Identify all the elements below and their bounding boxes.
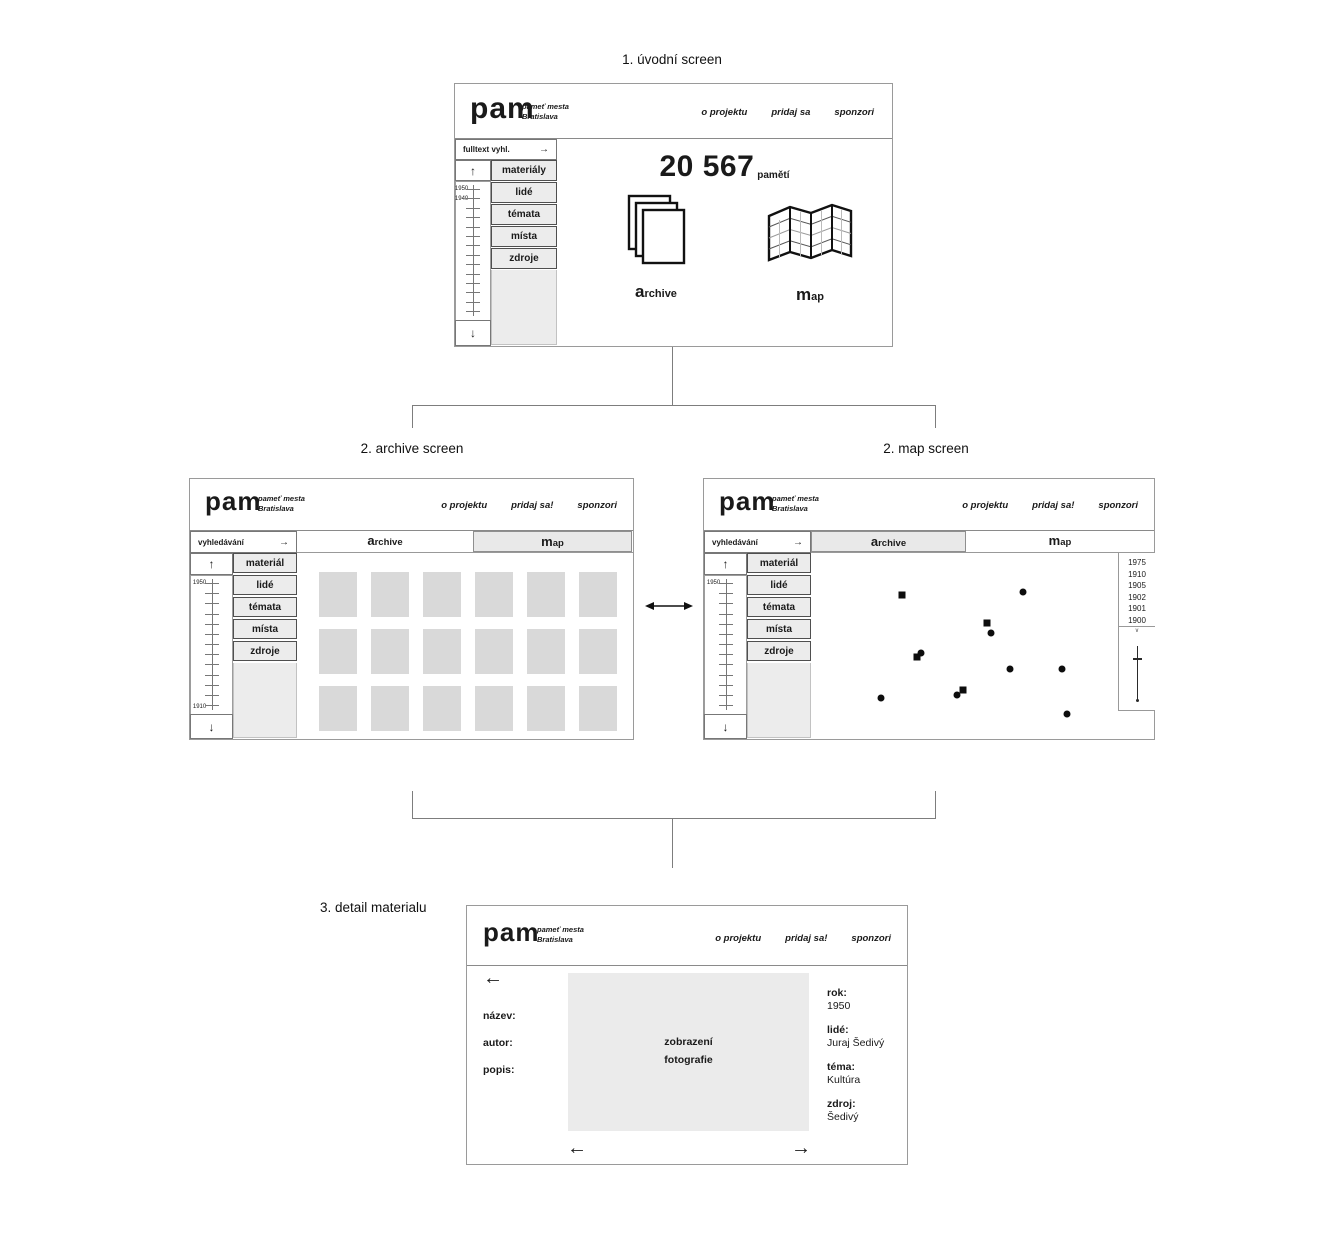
archive-screen: pam pameť mesta Bratislava o projektupri… (189, 478, 634, 740)
tab-map-rest: ap (553, 538, 564, 549)
timeline-scroll-down-button[interactable]: ↓ (190, 714, 233, 739)
folded-map-icon[interactable] (767, 200, 853, 270)
timeline-tick (205, 705, 219, 706)
timeline-tick (205, 654, 219, 655)
timeline-tick (466, 264, 480, 265)
timeline-tick (205, 675, 219, 676)
detail-field-label: popis: (483, 1064, 516, 1076)
timeline-tick (466, 311, 480, 312)
connector-line (672, 818, 673, 868)
map-marker-dot[interactable] (1020, 589, 1027, 596)
timeline-tick (466, 198, 480, 199)
timeline-tick (205, 583, 219, 584)
brand-tagline: pameť mesta Bratislava (537, 925, 584, 945)
logo[interactable]: pam (483, 919, 539, 945)
nav-link[interactable]: pridaj sa (771, 107, 810, 118)
archive-thumbnail[interactable] (319, 629, 357, 674)
logo[interactable]: pam (205, 488, 261, 514)
timeline-tick (205, 624, 219, 625)
detail-field-label: téma: (827, 1061, 905, 1074)
sidebar-item[interactable]: témata (491, 204, 557, 225)
archive-link-rest: rchive (645, 288, 677, 300)
archive-thumbnail[interactable] (423, 572, 461, 617)
archive-tab-bar: archive map (297, 531, 633, 553)
tab-map-initial: m (541, 534, 553, 549)
map-marker-dot[interactable] (1059, 666, 1066, 673)
search-label: vyhledávání (198, 538, 244, 547)
map-year-option[interactable]: 1901 (1119, 603, 1155, 615)
timeline[interactable]: 1950 1940 (456, 189, 490, 312)
arrow-up-icon: ↑ (209, 557, 215, 571)
detail-nav: o projektupridaj sa!sponzori (715, 933, 891, 944)
archive-thumbnail[interactable] (371, 629, 409, 674)
archive-thumbnail[interactable] (579, 629, 617, 674)
sidebar-item[interactable]: zdroje (233, 641, 297, 661)
sidebar-item[interactable]: místa (491, 226, 557, 247)
brand-tagline: pameť mesta Bratislava (522, 102, 569, 122)
timeline-tick (466, 283, 480, 284)
map-marker-dot[interactable] (878, 695, 885, 702)
search-submit-icon[interactable]: → (539, 144, 549, 155)
nav-link[interactable]: sponzori (577, 500, 617, 511)
timeline-tick (205, 603, 219, 604)
map-year-option[interactable]: 1910 (1119, 569, 1155, 581)
map-link-rest: ap (811, 291, 824, 303)
back-arrow-button[interactable]: ← (483, 968, 503, 988)
archive-link[interactable]: archive (601, 282, 711, 302)
intro-nav: o projektupridaj sasponzori (701, 107, 874, 118)
archive-thumbnail[interactable] (527, 629, 565, 674)
archive-thumbnail[interactable] (423, 629, 461, 674)
nav-link[interactable]: sponzori (851, 933, 891, 944)
timeline-tick (466, 302, 480, 303)
nav-link[interactable]: o projektu (701, 107, 747, 118)
photo-placeholder-line2: fotografie (664, 1052, 712, 1070)
detail-screen: pam pameť mesta Bratislava o projektupri… (466, 905, 908, 1165)
sidebar-item[interactable]: lidé (491, 182, 557, 203)
detail-field-label: rok: (827, 987, 905, 1000)
arrow-up-icon: ↑ (470, 164, 476, 178)
timeline-tick (466, 274, 480, 275)
archive-thumbnail[interactable] (475, 572, 513, 617)
map-screen: pam pameť mesta Bratislava o projektupri… (703, 478, 1155, 740)
flow-label-detail: 3. detail materialu (320, 900, 427, 915)
intro-screen: pam pameť mesta Bratislava o projektupri… (454, 83, 893, 347)
connector-line (935, 791, 936, 818)
sidebar-fill (233, 663, 297, 738)
timeline-tick (205, 614, 219, 615)
timeline-tick (205, 664, 219, 665)
bidirectional-arrow-icon (645, 598, 693, 614)
archive-search-field[interactable]: vyhledávání → (190, 531, 297, 553)
tab-archive-rest: rchive (375, 537, 403, 548)
detail-field-label: zdroj: (827, 1098, 905, 1111)
map-year-option[interactable]: 1902 (1119, 592, 1155, 604)
connector-line (935, 405, 936, 428)
arrow-down-icon: ↓ (470, 326, 476, 340)
sidebar-item[interactable]: materiál (233, 553, 297, 573)
detail-field: zdroj:Šedivý (827, 1098, 905, 1124)
timeline-tick (466, 227, 480, 228)
timeline-tick (205, 634, 219, 635)
chevron-down-icon[interactable]: ∨ (1119, 627, 1155, 636)
tagline-line2: Bratislava (522, 112, 569, 122)
arrow-down-icon: ↓ (209, 720, 215, 734)
next-item-button[interactable]: → (791, 1138, 811, 1158)
brand-tagline: pameť mesta Bratislava (258, 494, 305, 514)
archive-link-initial: a (635, 282, 644, 301)
flow-label-map: 2. map screen (883, 441, 969, 456)
map-marker-square[interactable] (899, 592, 906, 599)
sidebar-item[interactable]: místa (233, 619, 297, 639)
tab-map[interactable]: map (473, 531, 632, 552)
nav-link[interactable]: o projektu (441, 500, 487, 511)
fulltext-search-field[interactable]: fulltext vyhl. → (455, 139, 557, 160)
flow-label-intro: 1. úvodní screen (622, 52, 722, 67)
memory-count-suffix: pamětí (757, 170, 789, 181)
tab-archive-initial: a (367, 533, 374, 548)
connector-line (412, 818, 936, 819)
archive-thumbnail[interactable] (371, 572, 409, 617)
detail-field-label: autor: (483, 1037, 516, 1049)
map-year-panel: 197519101905190219011900 ∨ (1118, 553, 1155, 711)
archive-sidebar-menu: materiállidétématamístazdroje (233, 553, 297, 738)
connector-line (412, 405, 413, 428)
map-marker-square[interactable] (960, 687, 967, 694)
tagline-line2: Bratislava (258, 504, 305, 514)
map-markers-layer (704, 479, 1154, 739)
detail-field-value: Šedivý (827, 1111, 905, 1124)
timeline-tick (466, 217, 480, 218)
timeline-tick (205, 685, 219, 686)
archive-thumbnail[interactable] (423, 686, 461, 731)
detail-header: pam pameť mesta Bratislava o projektupri… (467, 906, 907, 966)
detail-field: téma:Kultúra (827, 1061, 905, 1087)
archive-header: pam pameť mesta Bratislava o projektupri… (190, 479, 633, 531)
timeline-scroll-up-button[interactable]: ↑ (455, 160, 491, 181)
timeline-tick (466, 236, 480, 237)
previous-item-button[interactable]: ← (567, 1138, 587, 1158)
timeline-tick (466, 208, 480, 209)
nav-link[interactable]: sponzori (834, 107, 874, 118)
map-link-initial: m (796, 285, 811, 304)
map-year-list: 197519101905190219011900 (1119, 553, 1155, 627)
archive-thumbnail[interactable] (527, 572, 565, 617)
detail-field-label: název: (483, 1010, 516, 1022)
search-submit-icon[interactable]: → (279, 537, 289, 548)
connector-line (672, 347, 673, 405)
timeline-tick (205, 644, 219, 645)
archive-nav: o projektupridaj sa!sponzori (441, 500, 617, 511)
timeline-scroll-up-button[interactable]: ↑ (190, 553, 233, 575)
tagline-line1: pameť mesta (537, 925, 584, 935)
detail-field-value: Juraj Šedivý (827, 1037, 905, 1050)
tagline-line1: pameť mesta (258, 494, 305, 504)
nav-link[interactable]: o projektu (715, 933, 761, 944)
sidebar-item[interactable]: materiály (491, 160, 557, 181)
search-label: fulltext vyhl. (463, 145, 510, 154)
tagline-line1: pameť mesta (522, 102, 569, 112)
detail-metadata: rok:1950lidé:Juraj Šedivýtéma:Kultúrazdr… (827, 987, 905, 1135)
photo-placeholder: zobrazení fotografie (568, 973, 809, 1131)
map-marker-dot[interactable] (1064, 711, 1071, 718)
connector-line (412, 405, 936, 406)
tab-archive-active[interactable]: archive (297, 531, 473, 552)
nav-link[interactable]: pridaj sa! (511, 500, 553, 511)
timeline-tick (466, 189, 480, 190)
map-marker-square[interactable] (984, 620, 991, 627)
timeline-scroll-down-button[interactable]: ↓ (455, 320, 491, 346)
tagline-line2: Bratislava (537, 935, 584, 945)
intro-sidebar-menu: materiálylidétématamístazdroje (491, 160, 557, 345)
flow-label-archive: 2. archive screen (361, 441, 464, 456)
archive-documents-icon[interactable] (627, 194, 687, 266)
map-marker-dot[interactable] (988, 630, 995, 637)
memory-count: 20 567pamětí (557, 150, 892, 184)
timeline-box: 1950 1940 (455, 181, 491, 322)
map-marker-dot[interactable] (954, 692, 961, 699)
sidebar-item[interactable]: témata (233, 597, 297, 617)
archive-thumbnail[interactable] (475, 686, 513, 731)
intro-header: pam pameť mesta Bratislava o projektupri… (455, 84, 892, 139)
detail-field-label: lidé: (827, 1024, 905, 1037)
timeline[interactable]: 1950 1910 (191, 583, 232, 706)
timeline-tick (466, 292, 480, 293)
memory-count-number: 20 567 (660, 150, 755, 183)
sidebar-item[interactable]: zdroje (491, 248, 557, 269)
timeline-box: 1950 1910 (190, 575, 233, 716)
detail-field: rok:1950 (827, 987, 905, 1013)
nav-link[interactable]: pridaj sa! (785, 933, 827, 944)
map-year-option[interactable]: 1900 (1119, 615, 1155, 627)
zoom-slider[interactable] (1137, 646, 1138, 700)
connector-line (412, 791, 413, 818)
sidebar-fill (491, 270, 557, 345)
archive-thumbnail[interactable] (579, 686, 617, 731)
map-year-option[interactable]: 1975 (1119, 557, 1155, 569)
archive-thumbnail[interactable] (371, 686, 409, 731)
detail-field-value: 1950 (827, 1000, 905, 1013)
archive-thumbnail[interactable] (475, 629, 513, 674)
timeline-tick (205, 593, 219, 594)
map-marker-dot[interactable] (1007, 666, 1014, 673)
archive-thumbnail[interactable] (579, 572, 617, 617)
detail-field: lidé:Juraj Šedivý (827, 1024, 905, 1050)
timeline-tick (466, 255, 480, 256)
timeline-tick (466, 245, 480, 246)
timeline-tick (205, 695, 219, 696)
map-marker-dot[interactable] (918, 650, 925, 657)
map-link[interactable]: map (755, 285, 865, 305)
map-year-option[interactable]: 1905 (1119, 580, 1155, 592)
archive-thumbnail[interactable] (319, 572, 357, 617)
photo-placeholder-line1: zobrazení (664, 1034, 712, 1052)
zoom-slider-box (1119, 636, 1155, 710)
sidebar-item[interactable]: lidé (233, 575, 297, 595)
archive-thumbnail[interactable] (319, 686, 357, 731)
wireframe-canvas: 1. úvodní screen 2. archive screen 2. ma… (0, 0, 1340, 1244)
archive-thumbnail[interactable] (527, 686, 565, 731)
detail-left-labels: název:autor:popis: (483, 1010, 516, 1091)
detail-field-value: Kultúra (827, 1074, 905, 1087)
